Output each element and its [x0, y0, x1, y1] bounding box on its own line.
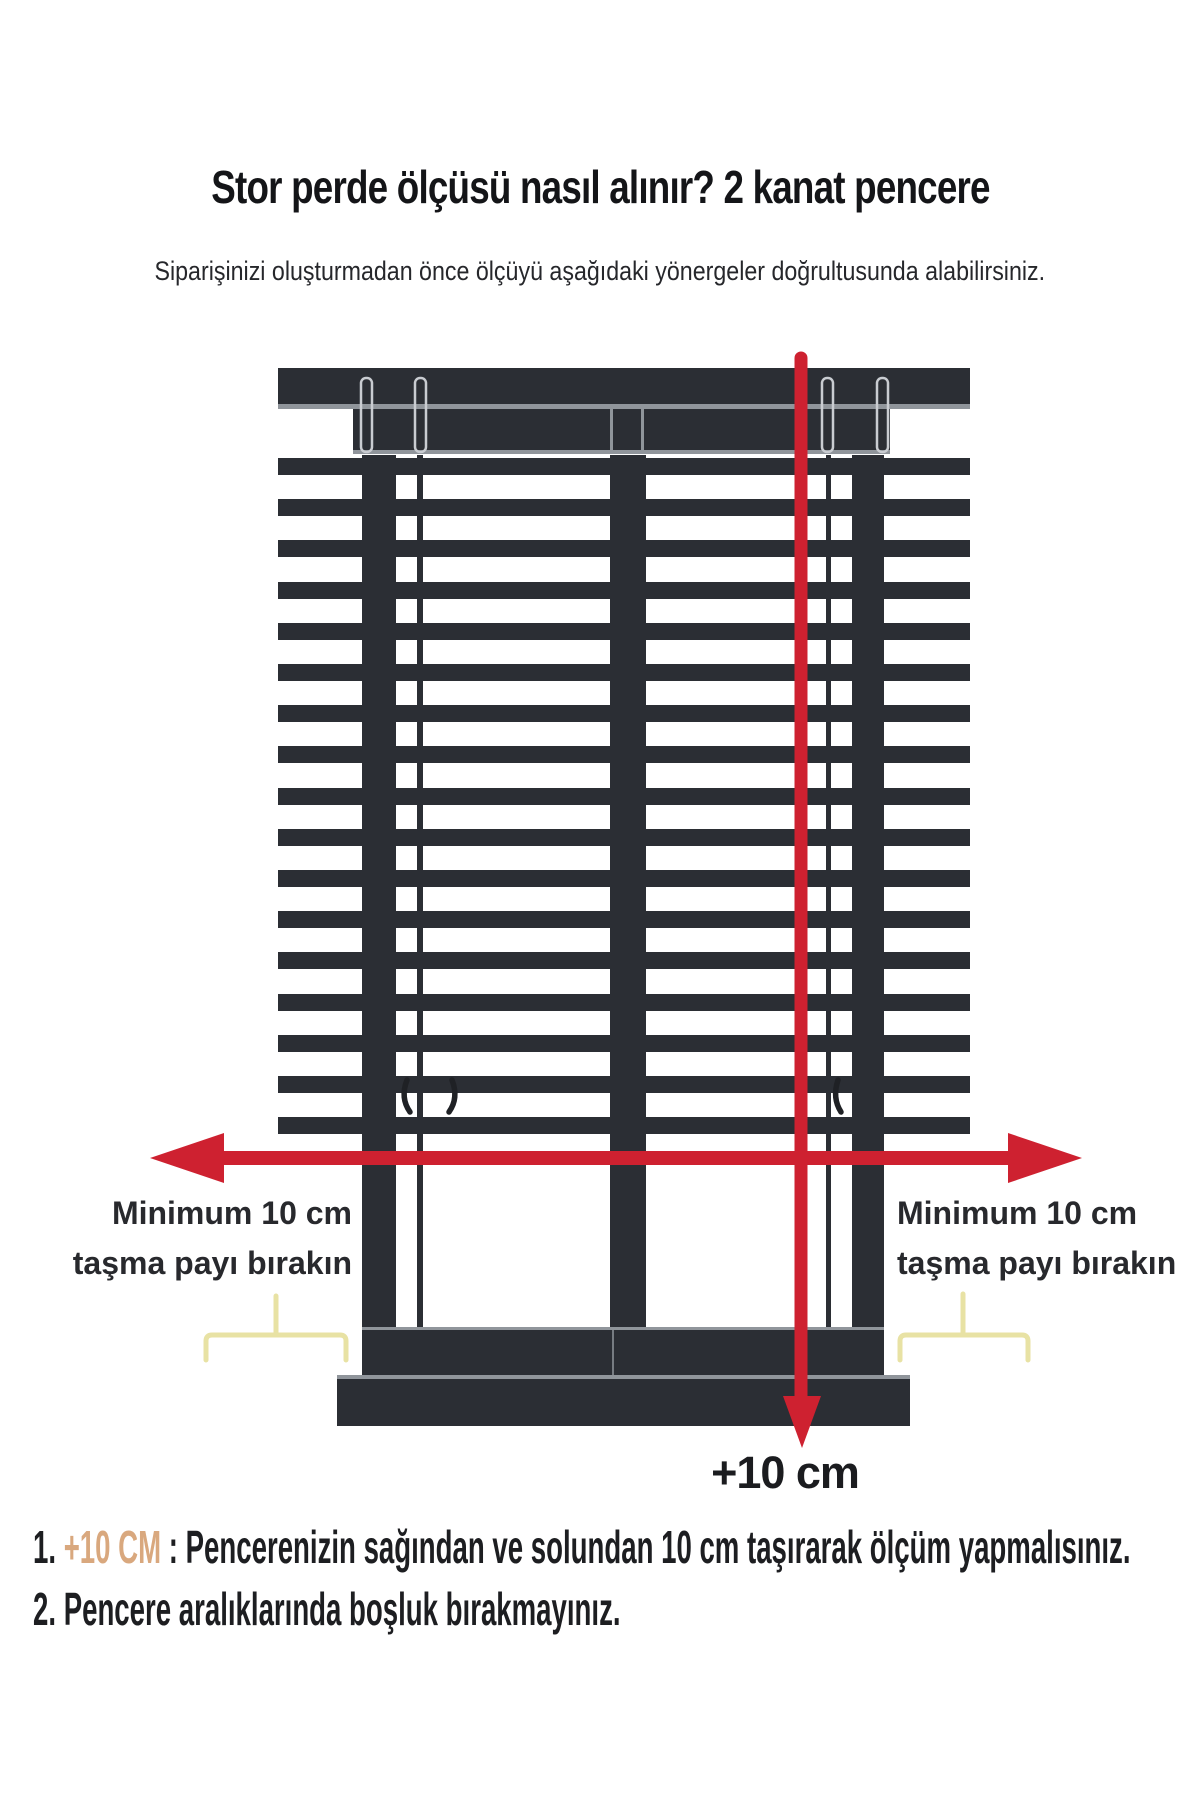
note-highlight: +10 CM	[56, 1521, 169, 1573]
height-measure-arrow	[783, 358, 821, 1448]
page-title: Stor perde ölçüsü nasıl alınır? 2 kanat …	[0, 160, 1200, 214]
arrow-left-icon	[150, 1133, 224, 1183]
note-number: 1.	[33, 1521, 56, 1573]
page-title-text: Stor perde ölçüsü nasıl alınır? 2 kanat …	[211, 160, 989, 214]
slat	[278, 911, 970, 928]
cassette-mid-line-a	[610, 409, 613, 451]
slat	[278, 1035, 970, 1052]
arrow-right-icon	[1008, 1133, 1082, 1183]
overhang-label-left: Minimum 10 cm taşma payı bırakın	[73, 1188, 352, 1288]
slat	[278, 788, 970, 805]
page-subtitle-text: Siparişinizi oluşturmadan önce ölçüyü aş…	[155, 256, 1046, 287]
cassette-bottom-edge	[353, 450, 890, 454]
bracket-span	[206, 1335, 346, 1360]
overhang-label-right: Minimum 10 cm taşma payı bırakın	[897, 1188, 1176, 1288]
overhang-label-left-line1: Minimum 10 cm	[73, 1188, 352, 1238]
slat	[278, 540, 970, 557]
page-subtitle: Siparişinizi oluşturmadan önce ölçüyü aş…	[0, 256, 1200, 287]
note-item: 1. +10 CM : Pencerenizin sağından ve sol…	[33, 1516, 1173, 1578]
plus-10-cm-label: +10 cm	[655, 1447, 915, 1499]
slat	[278, 458, 970, 475]
notes-list: 1. +10 CM : Pencerenizin sağından ve sol…	[33, 1516, 1173, 1640]
overhang-label-right-line2: taşma payı bırakın	[897, 1238, 1176, 1288]
blind-cassette	[278, 368, 970, 454]
slat	[278, 623, 970, 640]
cassette-bottom-row	[353, 409, 890, 451]
cassette-separator-line	[278, 404, 970, 409]
note-item: 2. Pencere aralıklarında boşluk bırakmay…	[33, 1578, 1173, 1640]
slat	[278, 582, 970, 599]
slat	[278, 870, 970, 887]
measurement-guide-page: Stor perde ölçüsü nasıl alınır? 2 kanat …	[0, 0, 1200, 1800]
slat	[278, 746, 970, 763]
overhang-label-right-line1: Minimum 10 cm	[897, 1188, 1176, 1238]
note-text: Pencere aralıklarında boşluk bırakmayını…	[56, 1583, 621, 1635]
window-sill	[337, 1379, 910, 1426]
window-frame	[337, 455, 910, 1426]
overhang-label-left-line2: taşma payı bırakın	[73, 1238, 352, 1288]
slat	[278, 499, 970, 516]
slat	[278, 664, 970, 681]
slat	[278, 952, 970, 969]
window-rail-divider-line	[612, 1330, 614, 1377]
cassette-top-row	[278, 368, 970, 406]
overhang-bracket-right	[900, 1294, 1028, 1360]
slat	[278, 829, 970, 846]
bracket-span	[900, 1335, 1028, 1360]
slat	[278, 1117, 970, 1134]
slat	[278, 705, 970, 722]
overhang-bracket-left	[206, 1296, 346, 1360]
cassette-mid-line-b	[641, 409, 644, 451]
note-number: 2.	[33, 1583, 56, 1635]
window-sill-top-edge	[337, 1375, 910, 1379]
slat	[278, 1076, 970, 1093]
note-text: : Pencerenizin sağından ve solundan 10 c…	[169, 1521, 1131, 1573]
slat	[278, 994, 970, 1011]
